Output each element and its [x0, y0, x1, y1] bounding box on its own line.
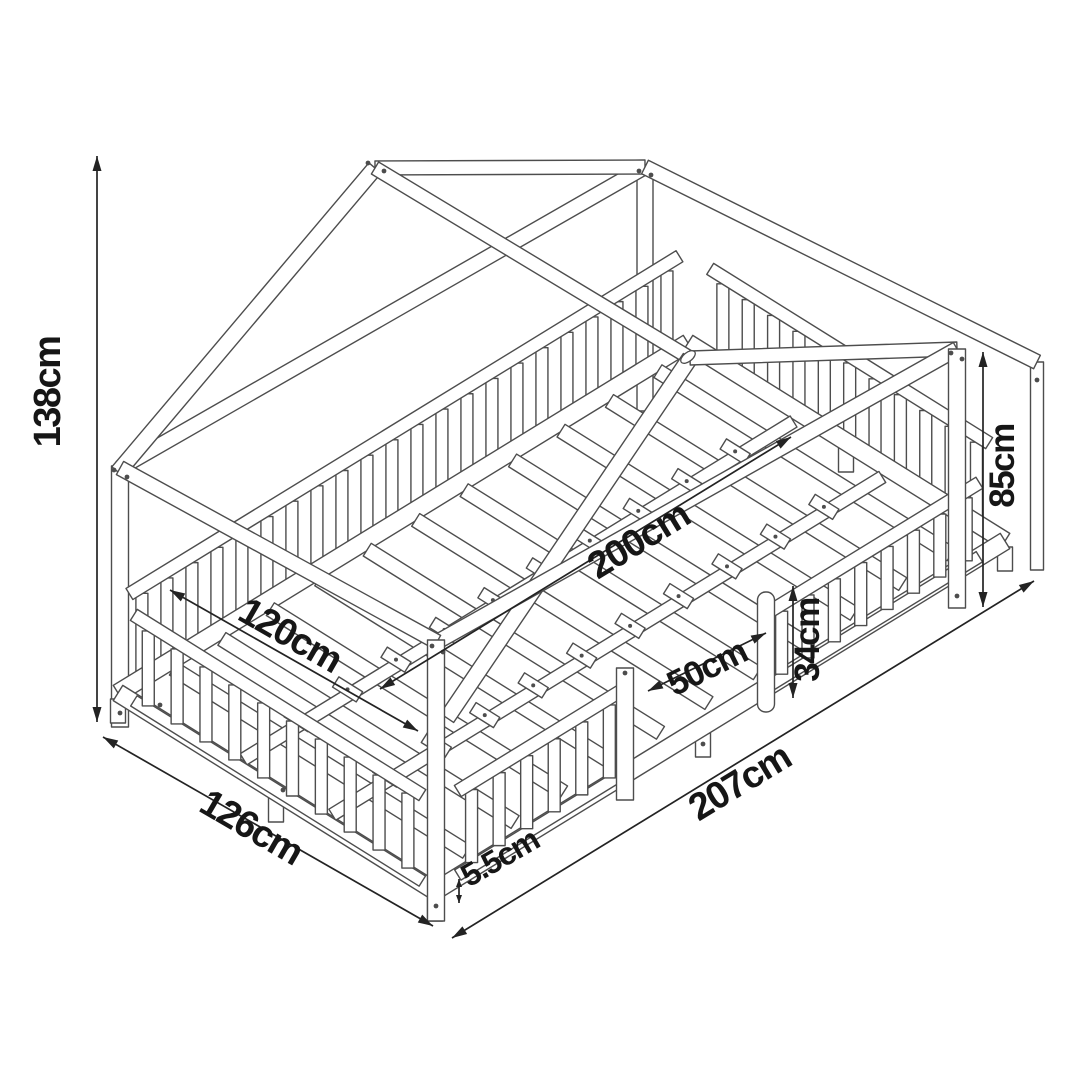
dimension-label: 120cm: [231, 590, 348, 682]
dimension-outer-length: 207cm: [452, 581, 1034, 938]
house-bed-dimension-diagram: 138cm85cm200cm120cm50cm34cm126cm207cm5.5…: [0, 0, 1080, 1080]
dimension-label: 34cm: [788, 598, 827, 682]
plate-foot: [642, 160, 1041, 368]
diagram-canvas: 138cm85cm200cm120cm50cm34cm126cm207cm5.5…: [0, 0, 1080, 1080]
dimension-rail-height: 34cm: [788, 586, 827, 698]
dimension-total-height: 138cm: [27, 156, 102, 722]
dimension-label: 138cm: [27, 337, 69, 448]
dimension-label: 85cm: [983, 424, 1022, 508]
